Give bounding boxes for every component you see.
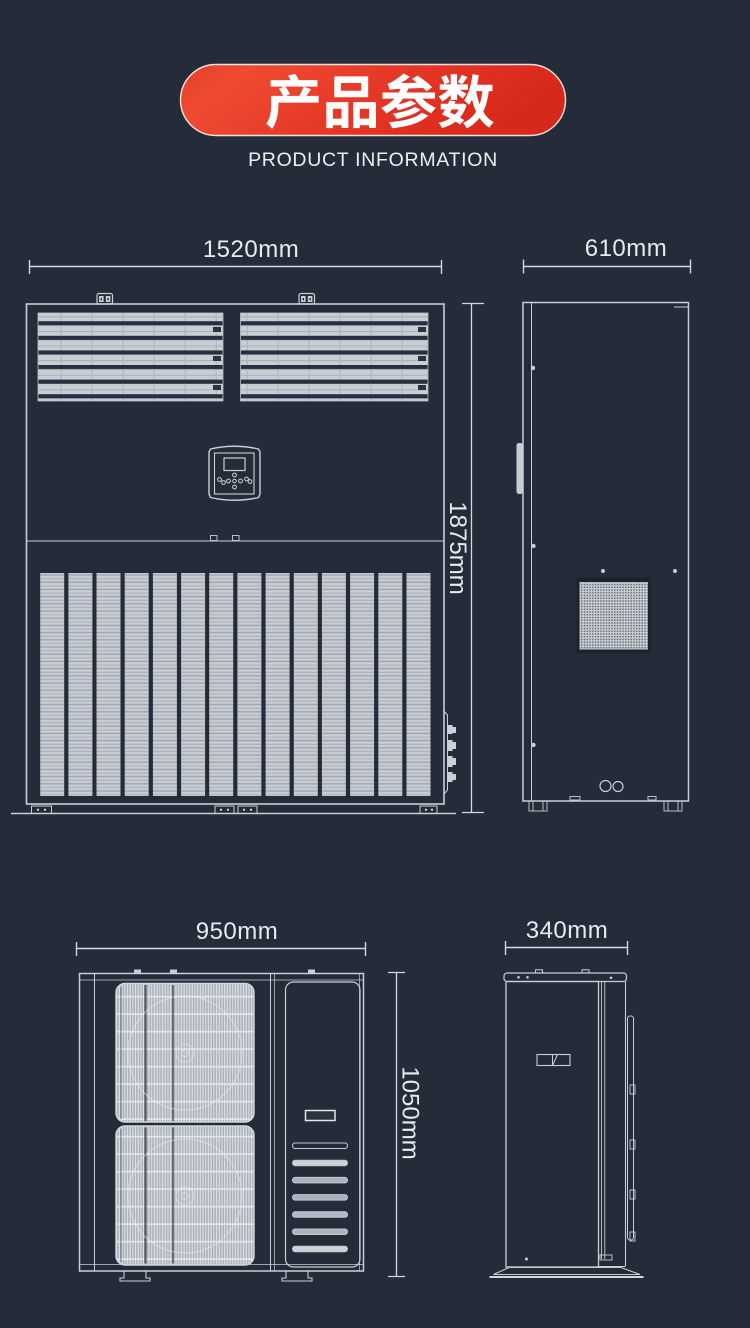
svg-text:1520mm: 1520mm (203, 236, 299, 263)
svg-text:1050mm: 1050mm (397, 1066, 424, 1159)
svg-text:PRODUCT INFORMATION: PRODUCT INFORMATION (248, 149, 498, 171)
svg-text:950mm: 950mm (196, 918, 279, 945)
svg-text:1875mm: 1875mm (444, 501, 471, 594)
svg-text:610mm: 610mm (585, 235, 668, 262)
svg-text:340mm: 340mm (526, 917, 609, 944)
